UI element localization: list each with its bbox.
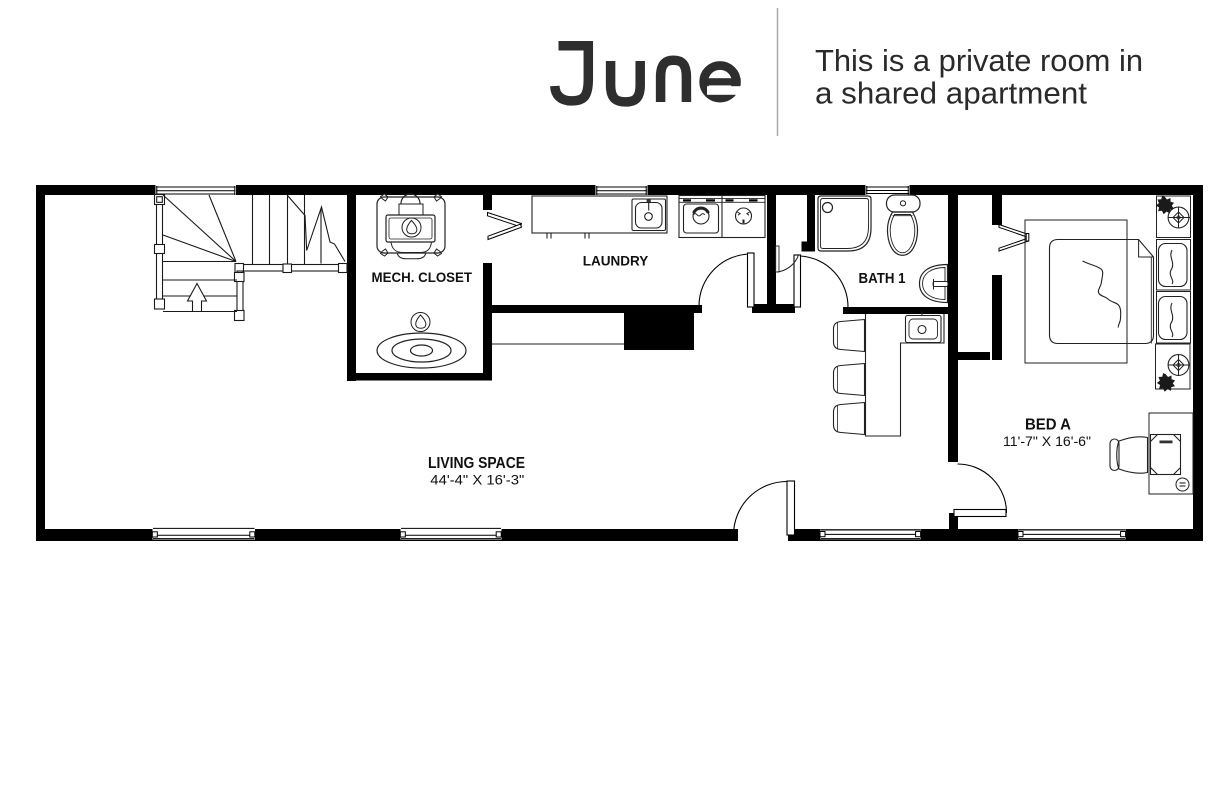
svg-text:MECH. CLOSET: MECH. CLOSET [372, 269, 473, 285]
svg-text:11'-7" X 16'-6": 11'-7" X 16'-6" [1003, 433, 1091, 449]
svg-text:This is a private room in: This is a private room in [815, 44, 1143, 78]
svg-text:BATH 1: BATH 1 [859, 270, 906, 287]
svg-text:LAUNDRY: LAUNDRY [583, 253, 649, 269]
svg-text:44'-4" X 16'-3": 44'-4" X 16'-3" [430, 472, 524, 488]
svg-text:a shared apartment: a shared apartment [815, 77, 1088, 111]
svg-text:BED A: BED A [1025, 417, 1071, 434]
svg-text:LIVING SPACE: LIVING SPACE [428, 455, 525, 472]
